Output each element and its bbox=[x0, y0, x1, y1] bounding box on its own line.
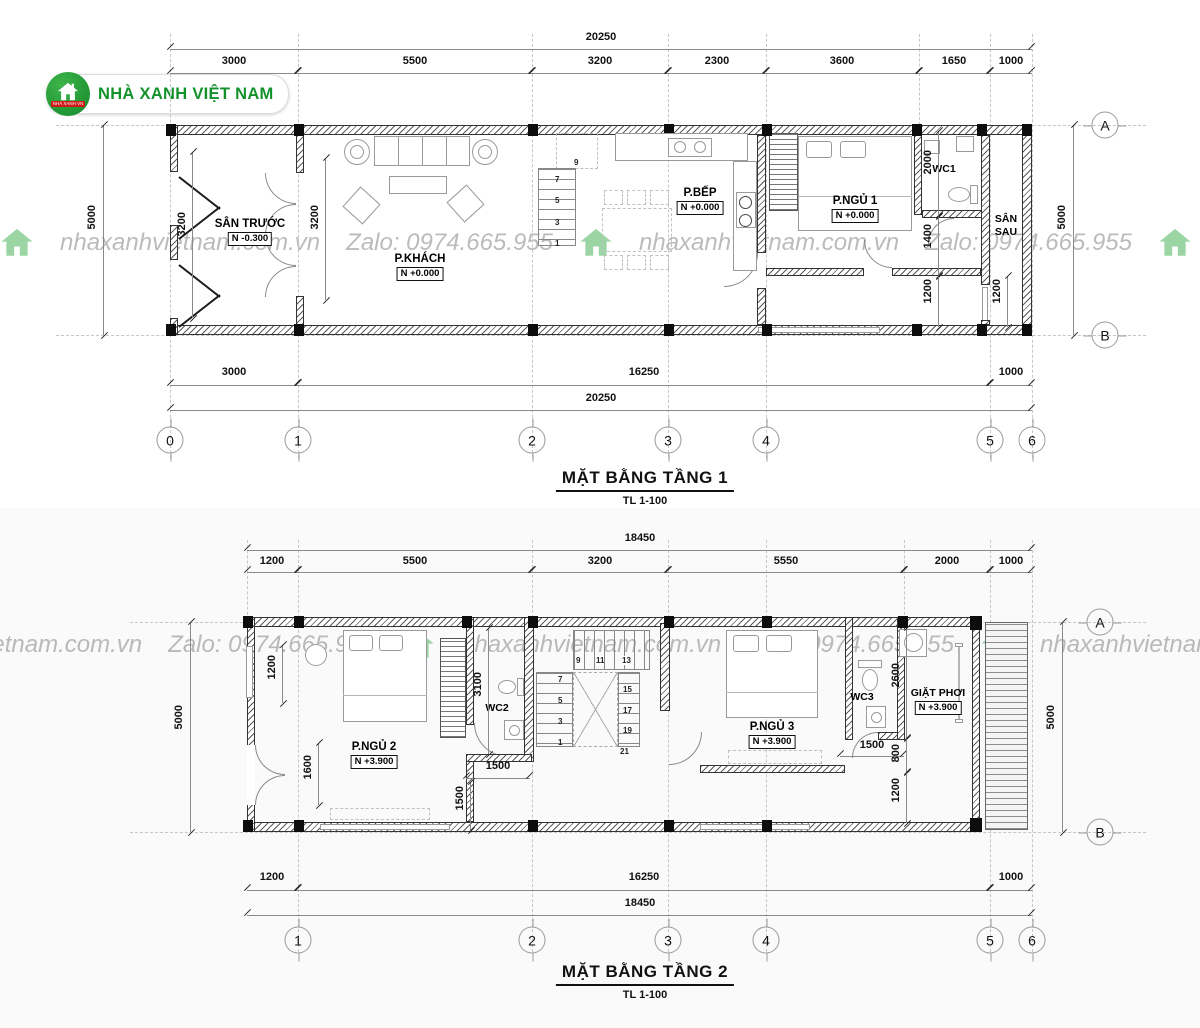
dim-line bbox=[906, 772, 907, 823]
dim-label: 1500 bbox=[860, 739, 884, 751]
blueprint-canvas: nhaxanhvietnam.com.vn Zalo: 0974.665.955… bbox=[0, 0, 1200, 1028]
toilet-tank bbox=[858, 660, 882, 668]
dim-label: 3100 bbox=[472, 672, 484, 696]
dim-label: 1200 bbox=[890, 778, 902, 802]
wall-top bbox=[247, 617, 980, 627]
dim-line bbox=[298, 890, 990, 891]
stair-number: 11 bbox=[596, 656, 604, 665]
dim-label: 5000 bbox=[1045, 705, 1057, 729]
dim-label: 800 bbox=[890, 744, 902, 762]
grid-bubble-1: 1 bbox=[285, 927, 312, 954]
column bbox=[970, 616, 982, 630]
floor2-scale: TL 1-100 bbox=[623, 989, 667, 1001]
stair-number: 9 bbox=[576, 656, 580, 665]
column bbox=[294, 616, 304, 628]
room-label-giat: GIẶT PHƠI N +3.900 bbox=[911, 687, 965, 715]
grid-line-B bbox=[130, 832, 1146, 833]
grid-bubble-label: 4 bbox=[762, 932, 770, 948]
dim-label: 5000 bbox=[173, 705, 185, 729]
grid-bubble-label: B bbox=[1095, 824, 1104, 840]
stair-number: 19 bbox=[623, 726, 632, 735]
dim-label: 2600 bbox=[890, 663, 902, 687]
wall-bedroom3 bbox=[700, 765, 845, 773]
grid-bubble-3: 3 bbox=[655, 927, 682, 954]
grid-bubble-2: 2 bbox=[519, 927, 546, 954]
pillow bbox=[766, 635, 792, 652]
stair-number: 17 bbox=[623, 706, 632, 715]
clothesline-end bbox=[955, 643, 963, 647]
bench bbox=[728, 750, 822, 764]
tv-cabinet bbox=[330, 808, 430, 820]
column bbox=[528, 820, 538, 832]
wall-stair bbox=[660, 623, 670, 711]
wall-wc3 bbox=[845, 617, 853, 740]
room-label-ngu3: P.NGỦ 3 N +3.900 bbox=[749, 720, 796, 749]
dim-label: 1200 bbox=[260, 871, 284, 883]
grid-bubble-label: 6 bbox=[1028, 932, 1036, 948]
wall-wc2 bbox=[524, 617, 534, 762]
door-arc bbox=[669, 732, 702, 765]
grid-bubble-5: 5 bbox=[977, 927, 1004, 954]
dim-line bbox=[466, 778, 530, 779]
stair-number: 13 bbox=[622, 656, 631, 665]
stair-number: 7 bbox=[558, 675, 562, 684]
dim-label: 1600 bbox=[302, 755, 314, 779]
window bbox=[700, 824, 810, 830]
toilet bbox=[498, 680, 516, 694]
dim-line bbox=[906, 738, 907, 772]
dim-line bbox=[247, 572, 298, 573]
level-badge: N +3.900 bbox=[915, 701, 962, 715]
door-arc bbox=[255, 775, 285, 805]
column bbox=[528, 616, 538, 628]
dim-label: 1200 bbox=[266, 655, 278, 679]
floor2-plan: 18450 1200 5500 3200 5550 2000 1000 bbox=[0, 0, 1200, 1028]
blanket-line bbox=[726, 692, 818, 693]
dim-line bbox=[247, 890, 298, 891]
dim-line bbox=[247, 550, 1032, 551]
stair-number: 1 bbox=[558, 738, 562, 747]
column bbox=[762, 820, 772, 832]
sink-bowl bbox=[871, 712, 882, 723]
roof-strip bbox=[985, 622, 1028, 830]
window bbox=[320, 824, 450, 830]
dim-line bbox=[904, 572, 990, 573]
room-name: P.NGỦ 3 bbox=[749, 720, 796, 734]
dim-label: 1000 bbox=[999, 871, 1023, 883]
grid-bubble-6: 6 bbox=[1019, 927, 1046, 954]
dim-line bbox=[906, 628, 907, 738]
door-opening bbox=[247, 745, 255, 805]
toilet bbox=[862, 669, 878, 691]
grid-line-aux bbox=[904, 540, 905, 620]
room-name: P.NGỦ 2 bbox=[351, 740, 398, 754]
grid-bubble-label: 3 bbox=[664, 932, 672, 948]
pillow bbox=[379, 635, 403, 651]
dim-label: 1200 bbox=[260, 555, 284, 567]
room-name: GIẶT PHƠI bbox=[911, 687, 965, 700]
grid-bubble-label: 1 bbox=[294, 932, 302, 948]
window bbox=[246, 646, 253, 698]
grid-bubble-label: A bbox=[1095, 614, 1104, 630]
level-badge: N +3.900 bbox=[749, 735, 796, 749]
clothesline-end bbox=[955, 719, 963, 723]
grid-bubble-label: 5 bbox=[986, 932, 994, 948]
staircase-top-flight bbox=[573, 630, 650, 670]
dim-line bbox=[298, 572, 532, 573]
dim-label: 18450 bbox=[625, 532, 656, 544]
level-badge: N +3.900 bbox=[351, 755, 398, 769]
room-label-wc3: WC3 bbox=[850, 691, 873, 704]
grid-bubble-label: 2 bbox=[528, 932, 536, 948]
stair-number: 21 bbox=[620, 747, 629, 756]
floor2-title: MẶT BẰNG TẦNG 2 bbox=[556, 962, 734, 986]
sink-bowl bbox=[509, 725, 520, 736]
grid-bubble-4: 4 bbox=[753, 927, 780, 954]
column bbox=[762, 616, 772, 628]
room-label-ngu2: P.NGỦ 2 N +3.900 bbox=[351, 740, 398, 769]
dim-label: 1500 bbox=[454, 786, 466, 810]
room-name: WC3 bbox=[850, 691, 873, 704]
grid-bubble-A: A bbox=[1087, 609, 1114, 636]
stair-number: 3 bbox=[558, 717, 562, 726]
column bbox=[294, 820, 304, 832]
dim-line bbox=[247, 915, 1032, 916]
wall-right bbox=[972, 617, 980, 832]
dim-line bbox=[318, 743, 319, 805]
stair-number: 15 bbox=[623, 685, 632, 694]
dim-label: 16250 bbox=[629, 871, 660, 883]
stair-void bbox=[573, 672, 618, 747]
dim-label: 18450 bbox=[625, 897, 656, 909]
dim-label: 2000 bbox=[935, 555, 959, 567]
dim-line bbox=[190, 622, 191, 832]
column bbox=[462, 616, 472, 628]
toilet-tank bbox=[517, 678, 524, 696]
round-chair bbox=[305, 644, 327, 666]
blanket-line bbox=[343, 695, 427, 696]
dim-label: 5500 bbox=[403, 555, 427, 567]
dim-label: 1000 bbox=[999, 555, 1023, 567]
wall-interior bbox=[466, 617, 474, 725]
dim-line bbox=[488, 628, 489, 754]
dim-label: 1500 bbox=[486, 760, 510, 772]
dim-line bbox=[532, 572, 668, 573]
dim-label: 3200 bbox=[588, 555, 612, 567]
dim-label: 5550 bbox=[774, 555, 798, 567]
dim-line bbox=[990, 890, 1032, 891]
grid-line-6 bbox=[1032, 540, 1033, 952]
stair-number: 5 bbox=[558, 696, 562, 705]
pillow bbox=[349, 635, 373, 651]
column bbox=[970, 818, 982, 832]
dim-line bbox=[470, 782, 471, 830]
wardrobe bbox=[440, 638, 466, 738]
grid-line-edge bbox=[247, 540, 248, 620]
column bbox=[243, 616, 253, 628]
dim-line bbox=[990, 572, 1032, 573]
door-arc bbox=[255, 745, 285, 775]
column bbox=[243, 820, 253, 832]
pillow bbox=[733, 635, 759, 652]
dim-line bbox=[1062, 622, 1063, 832]
column bbox=[664, 616, 674, 628]
column bbox=[664, 820, 674, 832]
dim-line bbox=[668, 572, 904, 573]
dim-line bbox=[282, 645, 283, 703]
staircase-left-flight bbox=[536, 672, 573, 747]
grid-bubble-B: B bbox=[1087, 819, 1114, 846]
